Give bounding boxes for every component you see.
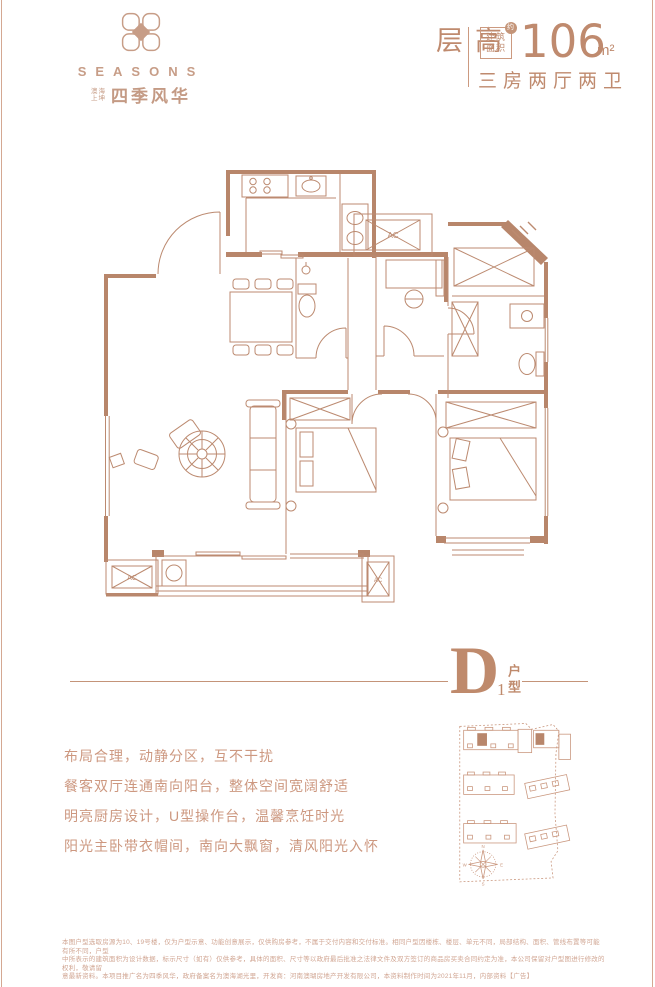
highlighted-unit — [477, 733, 487, 746]
highlighted-unit — [536, 733, 545, 745]
sub-brand-line2: 上坤 — [91, 95, 106, 102]
study-bedroom — [386, 260, 444, 308]
spec-divider — [468, 27, 469, 87]
unit-number: 1 — [497, 680, 506, 700]
heading-line-right — [522, 681, 588, 682]
unit-type-heading: D 1 户型 — [0, 638, 655, 702]
heading-line-left — [70, 681, 448, 682]
right-border-line — [652, 0, 653, 987]
seasons-flower-icon — [118, 8, 164, 56]
site-building-row3 — [464, 821, 570, 850]
walkin-closet — [454, 222, 536, 286]
left-border-line — [1, 0, 2, 987]
living-room — [109, 400, 280, 509]
sub-brand-stack: 澳海 上坤 — [91, 88, 106, 102]
site-building-row2 — [464, 772, 570, 799]
bathroom-center — [298, 262, 316, 317]
unit-type-label: 户型 — [506, 664, 520, 700]
disclaimer-line: 中所表示的建筑面积为设计数据，标示尺寸（如有）仅供参考，具体的面积、尺寸等以政府… — [62, 956, 605, 973]
sub-brand-line1: 澳海 — [91, 88, 106, 95]
kitchen — [242, 175, 336, 252]
area-label-line2: 面积 — [486, 43, 506, 54]
site-boundary — [460, 723, 559, 881]
ac-label: AC — [374, 578, 383, 584]
disclaimer-line: 意最新资料。本项目推广名为四季风华，政府备案名为澳海湖光里，开发商：河南澳瑚房地… — [62, 973, 605, 982]
master-bedroom — [286, 398, 376, 511]
brand-wordmark: SEASONS — [66, 64, 216, 79]
area-unit: m² — [597, 42, 615, 59]
ac-label: AC — [127, 575, 137, 582]
brand-cn-row: 澳海 上坤 四季风华 — [66, 82, 216, 107]
area-label-line1: 建筑 — [486, 32, 506, 43]
approx-badge: 约 — [505, 22, 517, 34]
brochure-page: SEASONS 澳海 上坤 四季风华 高层 建筑 面积 约 106 m² 三房两… — [0, 0, 655, 987]
ac-unit-bottom-center: AC — [362, 556, 394, 602]
dining-table — [230, 279, 293, 355]
compass-rose-icon — [469, 850, 498, 879]
feature-line: 餐客双厅连通南向阳台，整体空间宽阔舒适 — [64, 779, 404, 794]
bathroom-top — [342, 204, 368, 250]
ac-label: AC — [387, 231, 398, 240]
feature-line: 阳光主卧带衣帽间，南向大飘窗，清风阳光入怀 — [64, 839, 404, 854]
compass-s: S — [482, 882, 485, 887]
disclaimer-line: 本图户型选取房源为10、19号楼，仅为户型示意、功能创意展示，仅供购房参考，不属… — [62, 939, 605, 956]
disclaimer: 本图户型选取房源为10、19号楼，仅为户型示意、功能创意展示，仅供购房参考，不属… — [62, 939, 605, 982]
room-layout-label: 三房两厅两卫 — [478, 66, 628, 93]
balcony — [162, 560, 186, 586]
bathroom-master — [452, 302, 544, 376]
feature-list: 布局合理，动静分区，互不干扰 餐客双厅连通南向阳台，整体空间宽阔舒适 明亮厨房设… — [64, 749, 404, 869]
compass-n: N — [482, 844, 485, 849]
area-label-box: 建筑 面积 约 — [480, 27, 512, 59]
ac-unit-bottom-left: AC — [106, 560, 158, 594]
siteplan-map: N S E W — [452, 720, 588, 896]
compass-w: W — [463, 862, 468, 867]
area-value: 106 — [520, 19, 606, 64]
project-name: 四季风华 — [111, 82, 191, 107]
plan-partitions — [106, 174, 548, 596]
unit-letter: D — [450, 640, 499, 700]
plan-doors — [158, 212, 474, 559]
feature-line: 布局合理，动静分区，互不干扰 — [64, 749, 404, 764]
plan-walls — [104, 170, 548, 597]
second-bedroom — [438, 402, 536, 513]
spec-block: 高层 建筑 面积 约 106 m² 三房两厅两卫 — [428, 24, 643, 90]
compass-e: E — [500, 862, 503, 867]
ac-unit-top: AC — [354, 214, 432, 256]
site-building-row1 — [464, 727, 571, 759]
floorplan-drawing: AC — [100, 166, 550, 611]
feature-line: 明亮厨房设计，U型操作台，温馨烹饪时光 — [64, 809, 404, 824]
